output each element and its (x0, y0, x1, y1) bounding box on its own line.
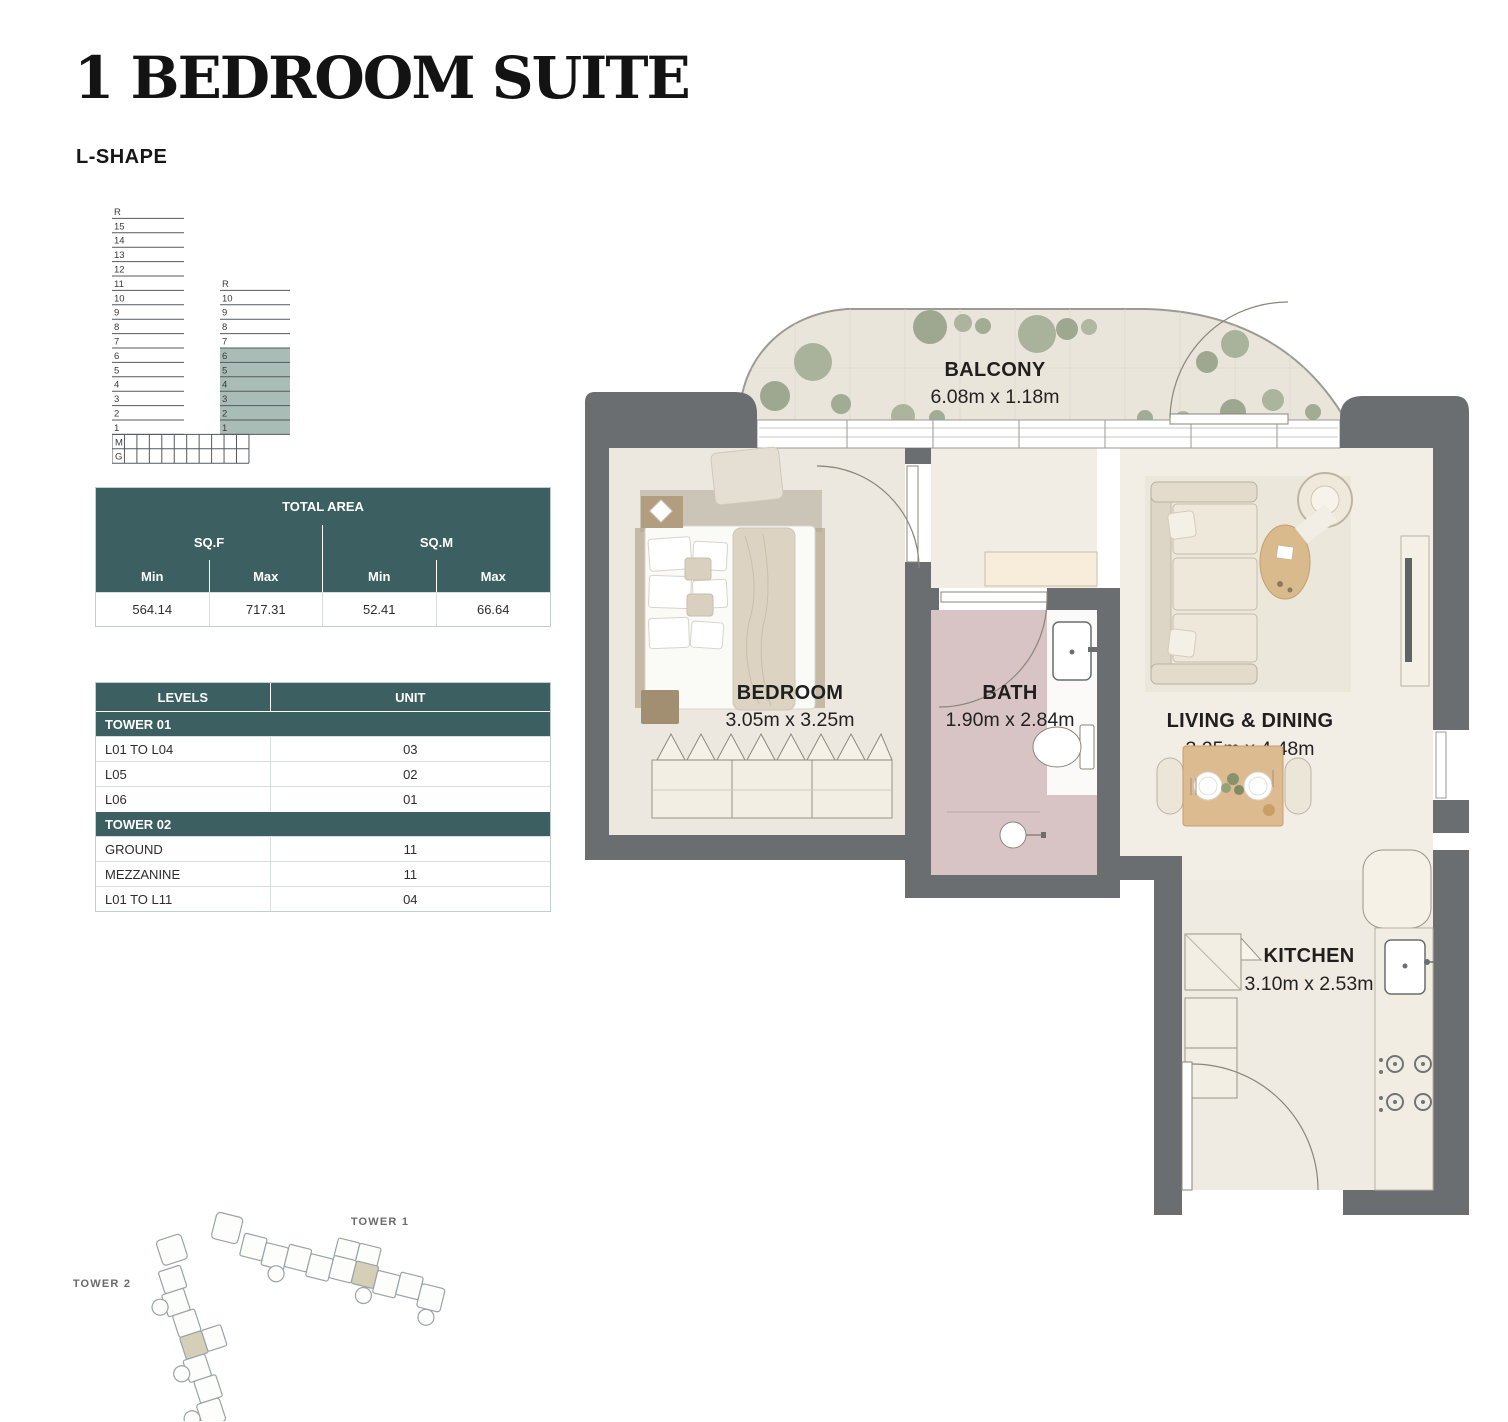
total-area-title: TOTAL AREA (96, 488, 550, 525)
bedroom-dims: 3.05m x 3.25m (726, 709, 855, 731)
svg-text:R: R (114, 207, 121, 218)
svg-text:4: 4 (114, 380, 119, 391)
bedroom-label: BEDROOM (737, 682, 844, 704)
max-sqm-header: Max (437, 560, 551, 592)
svg-text:3: 3 (114, 394, 119, 405)
svg-text:15: 15 (114, 221, 125, 232)
svg-text:3: 3 (222, 394, 227, 405)
max-sqf-value: 717.31 (210, 592, 324, 626)
bath-sink (1053, 622, 1097, 680)
level-range: L01 TO L04 (96, 736, 271, 761)
min-sqm-value: 52.41 (323, 592, 437, 626)
svg-text:7: 7 (222, 337, 227, 348)
unit-number: 03 (271, 736, 550, 761)
level-range: GROUND (96, 836, 271, 861)
tower1-outline (203, 1208, 451, 1328)
max-sqm-value: 66.64 (437, 592, 551, 626)
svg-text:9: 9 (222, 308, 227, 319)
svg-text:2: 2 (114, 409, 119, 420)
floor-plan: BALCONY 6.08m x 1.18m (585, 300, 1505, 1215)
balcony-label: BALCONY (945, 359, 1046, 381)
unit-number: 11 (271, 836, 550, 861)
kitchen-dims: 3.10m x 2.53m (1245, 973, 1374, 995)
svg-text:1: 1 (114, 423, 119, 434)
svg-text:R: R (222, 279, 229, 290)
unit-number: 01 (271, 786, 550, 811)
level-range: L01 TO L11 (96, 886, 271, 911)
page-title: 1 BEDROOM SUITE (74, 44, 689, 112)
entry-console (985, 552, 1097, 586)
svg-text:2: 2 (222, 409, 227, 420)
living-dining-label: LIVING & DINING (1167, 710, 1334, 732)
unit-number: 11 (271, 861, 550, 886)
levels-table: LEVELS UNIT TOWER 01 L01 TO L04 03 L05 0… (95, 682, 551, 912)
sqm-header: SQ.M (323, 525, 550, 560)
bench-cushion (710, 447, 783, 506)
svg-text:5: 5 (222, 365, 227, 376)
max-sqf-header: Max (210, 560, 324, 592)
tower-01-section: TOWER 01 (96, 711, 550, 736)
floorplan-page: 1 BEDROOM SUITE L-SHAPE R151413121110987… (0, 0, 1508, 1422)
svg-text:5: 5 (114, 365, 119, 376)
unit-number: 02 (271, 761, 550, 786)
svg-text:8: 8 (114, 322, 119, 333)
level-range: L05 (96, 761, 271, 786)
svg-text:7: 7 (114, 337, 119, 348)
levels-header: LEVELS (96, 683, 271, 711)
total-area-table: TOTAL AREA SQ.F SQ.M Min Max Min Max 564… (95, 487, 551, 627)
building-stack-diagram: R151413121110987654321R10987654321MG (112, 196, 298, 472)
svg-text:M: M (115, 437, 123, 448)
svg-text:6: 6 (222, 351, 227, 362)
balcony-dims: 6.08m x 1.18m (931, 386, 1060, 408)
svg-text:10: 10 (114, 293, 125, 304)
tower2-outline (129, 1230, 249, 1421)
svg-text:13: 13 (114, 250, 125, 261)
svg-text:9: 9 (114, 308, 119, 319)
tower2-label: TOWER 2 (73, 1278, 131, 1290)
site-plan: TOWER 1 TOWER 2 (60, 1195, 490, 1421)
level-range: L06 (96, 786, 271, 811)
level-range: MEZZANINE (96, 861, 271, 886)
nightstand (641, 496, 683, 528)
page-subtitle: L-SHAPE (76, 146, 167, 169)
svg-text:12: 12 (114, 265, 125, 276)
bath-label: BATH (982, 682, 1037, 704)
svg-text:10: 10 (222, 293, 233, 304)
svg-text:14: 14 (114, 236, 125, 247)
svg-text:G: G (115, 452, 122, 463)
tower-02-section: TOWER 02 (96, 811, 550, 836)
bath-dims: 1.90m x 2.84m (946, 709, 1075, 731)
min-sqf-header: Min (96, 560, 210, 592)
svg-text:6: 6 (114, 351, 119, 362)
min-sqm-header: Min (323, 560, 437, 592)
min-sqf-value: 564.14 (96, 592, 210, 626)
living-side-window (1436, 732, 1446, 798)
svg-text:8: 8 (222, 322, 227, 333)
kitchen-label: KITCHEN (1264, 945, 1355, 967)
unit-header: UNIT (271, 683, 550, 711)
sofa (1151, 482, 1257, 684)
svg-text:4: 4 (222, 380, 227, 391)
toilet (1033, 725, 1094, 769)
svg-text:1: 1 (222, 423, 227, 434)
unit-number: 04 (271, 886, 550, 911)
sqf-header: SQ.F (96, 525, 323, 560)
svg-text:11: 11 (114, 279, 124, 290)
tv-console (1401, 536, 1429, 686)
bedside-stool (641, 690, 679, 724)
tower1-label: TOWER 1 (351, 1216, 409, 1228)
balcony-area: BALCONY 6.08m x 1.18m (740, 300, 1342, 429)
